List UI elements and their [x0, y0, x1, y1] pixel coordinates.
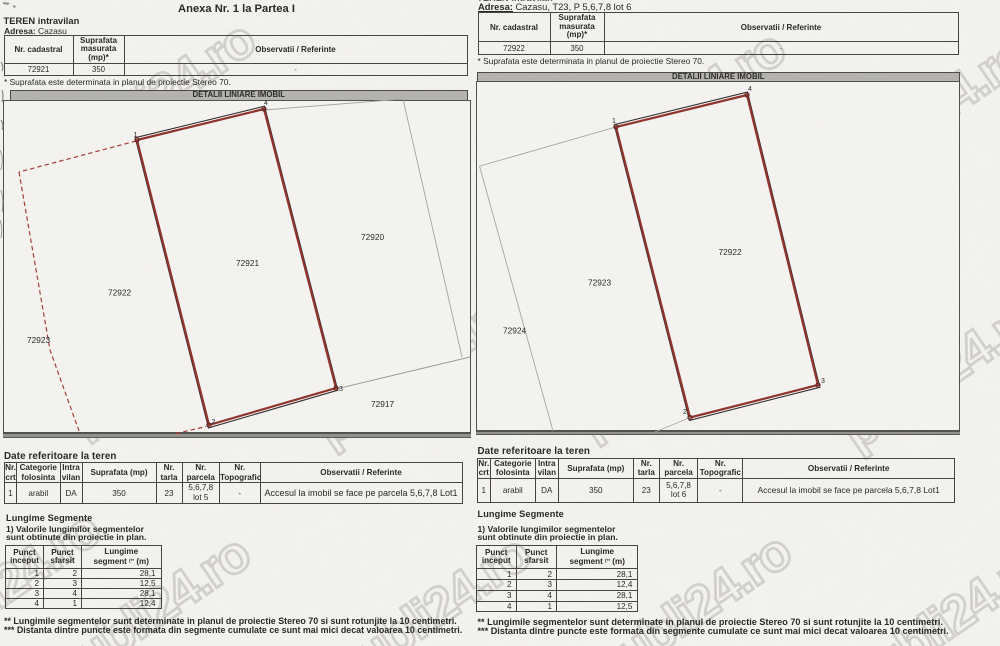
- svg-text:72922: 72922: [719, 247, 742, 257]
- svg-text:72923: 72923: [588, 278, 611, 288]
- svg-text:72920: 72920: [361, 232, 384, 242]
- svg-text:3: 3: [339, 386, 343, 393]
- svg-text:4: 4: [748, 86, 752, 93]
- svg-text:1: 1: [612, 118, 616, 125]
- svg-text:2: 2: [212, 419, 216, 426]
- svg-text:72923: 72923: [27, 335, 50, 345]
- svg-text:1: 1: [134, 132, 138, 139]
- svg-text:72922: 72922: [108, 288, 131, 298]
- svg-text:2: 2: [683, 409, 687, 416]
- svg-text:4: 4: [264, 100, 268, 107]
- svg-text:3: 3: [821, 378, 825, 385]
- svg-text:72917: 72917: [371, 399, 394, 409]
- svg-text:72921: 72921: [236, 258, 259, 268]
- svg-text:72924: 72924: [503, 326, 526, 336]
